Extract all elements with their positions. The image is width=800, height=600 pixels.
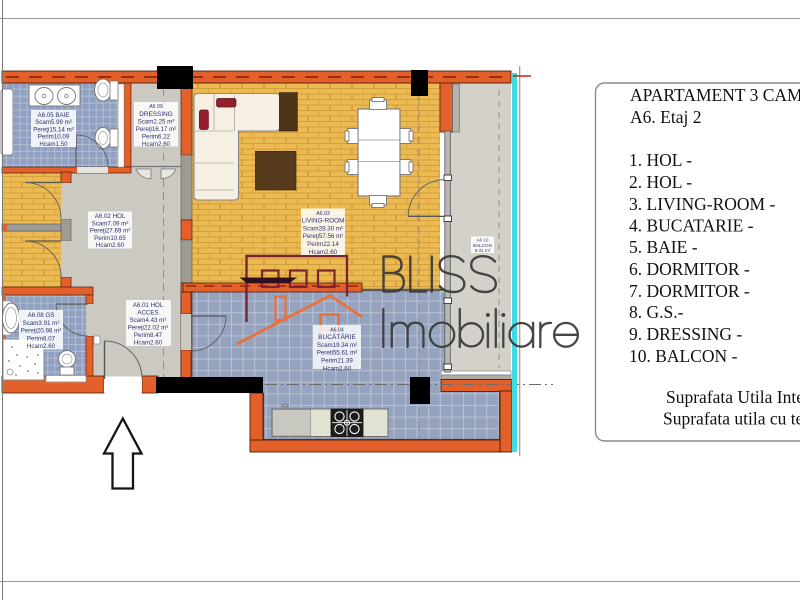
svg-text:5. BAIE -: 5. BAIE - [629, 237, 698, 257]
svg-text:Scam3.91 m²: Scam3.91 m² [23, 320, 60, 327]
svg-text:Hcam2.60: Hcam2.60 [27, 343, 56, 350]
svg-text:7. DORMITOR -: 7. DORMITOR - [629, 281, 750, 301]
svg-text:A6.03: A6.03 [316, 211, 330, 217]
svg-text:A6. Etaj 2: A6. Etaj 2 [630, 107, 701, 127]
svg-text:A6.02 HOL: A6.02 HOL [95, 213, 126, 220]
svg-text:Scam7.09 m²: Scam7.09 m² [92, 220, 129, 227]
svg-text:A6 10: A6 10 [476, 238, 488, 243]
svg-text:A6.04: A6.04 [330, 327, 344, 333]
svg-text:Pereţi27.69 m²: Pereţi27.69 m² [90, 228, 131, 235]
svg-text:4. BUCATARIE -: 4. BUCATARIE - [629, 216, 754, 236]
svg-text:Scam19.34 m²: Scam19.34 m² [317, 342, 357, 349]
svg-text:Suprafata Utila Interioara: Suprafata Utila Interioara [666, 387, 800, 407]
svg-text:Hcam2.60: Hcam2.60 [142, 141, 171, 148]
svg-text:Hcam2.60: Hcam2.60 [323, 365, 352, 372]
svg-text:6. DORMITOR -: 6. DORMITOR - [629, 259, 750, 279]
svg-text:Pereţi22.02 m²: Pereţi22.02 m² [128, 324, 169, 331]
svg-text:A6.01 HOL: A6.01 HOL [133, 302, 164, 309]
svg-text:Scam5.99 m²: Scam5.99 m² [35, 119, 72, 126]
svg-text:10. BALCON -: 10. BALCON - [629, 346, 738, 366]
svg-text:Perim10.65: Perim10.65 [94, 235, 126, 242]
svg-text:BUCĂTĂRIE: BUCĂTĂRIE [318, 332, 356, 341]
svg-text:Perim21.39: Perim21.39 [321, 358, 353, 365]
svg-text:Hcam2.60: Hcam2.60 [134, 339, 163, 346]
svg-text:LIVING-ROOM: LIVING-ROOM [302, 218, 345, 225]
svg-text:1. HOL -: 1. HOL - [629, 150, 692, 170]
svg-text:Perim10.09: Perim10.09 [38, 134, 70, 141]
svg-text:Suprafata utila cu terase: Suprafata utila cu terase [663, 409, 800, 429]
svg-text:Pereţi15.14 m²: Pereţi15.14 m² [33, 126, 74, 133]
svg-text:9. DRESSING -: 9. DRESSING - [629, 324, 742, 344]
svg-text:9.31 m²: 9.31 m² [475, 248, 491, 253]
svg-text:Scam2.25 m²: Scam2.25 m² [138, 118, 175, 125]
svg-text:Hcam2.60: Hcam2.60 [309, 249, 338, 256]
svg-text:A6 09: A6 09 [149, 104, 163, 110]
svg-text:Perim8.07: Perim8.07 [27, 335, 56, 342]
svg-text:Scam4.43 m²: Scam4.43 m² [130, 317, 167, 324]
svg-text:Hcam1.50: Hcam1.50 [39, 141, 68, 148]
svg-text:Perim6.22: Perim6.22 [142, 134, 171, 141]
svg-text:Pereti55.61 m²: Pereti55.61 m² [317, 350, 358, 357]
svg-text:A6.08 GS: A6.08 GS [28, 312, 55, 319]
svg-text:Pereţi16.17 m²: Pereţi16.17 m² [136, 126, 177, 133]
svg-text:Pereţi20.98 m²: Pereţi20.98 m² [21, 328, 62, 335]
svg-text:8. G.S.-: 8. G.S.- [629, 302, 684, 322]
svg-text:A6.05 BAIE: A6.05 BAIE [38, 112, 70, 119]
svg-text:2. HOL -: 2. HOL - [629, 172, 692, 192]
svg-text:APARTAMENT 3 CAMERE: APARTAMENT 3 CAMERE [630, 85, 800, 105]
svg-text:Pereţi57.56 m²: Pereţi57.56 m² [303, 233, 344, 240]
svg-text:DRESSING: DRESSING [139, 111, 172, 118]
svg-text:3. LIVING-ROOM -: 3. LIVING-ROOM - [629, 194, 775, 214]
svg-text:Perim8.47: Perim8.47 [134, 332, 163, 339]
svg-text:Perim22.14: Perim22.14 [307, 241, 339, 248]
svg-text:Scam28.30 m²: Scam28.30 m² [303, 225, 343, 232]
svg-text:ACCES: ACCES [137, 309, 158, 316]
svg-text:Hcam2.60: Hcam2.60 [96, 242, 125, 249]
